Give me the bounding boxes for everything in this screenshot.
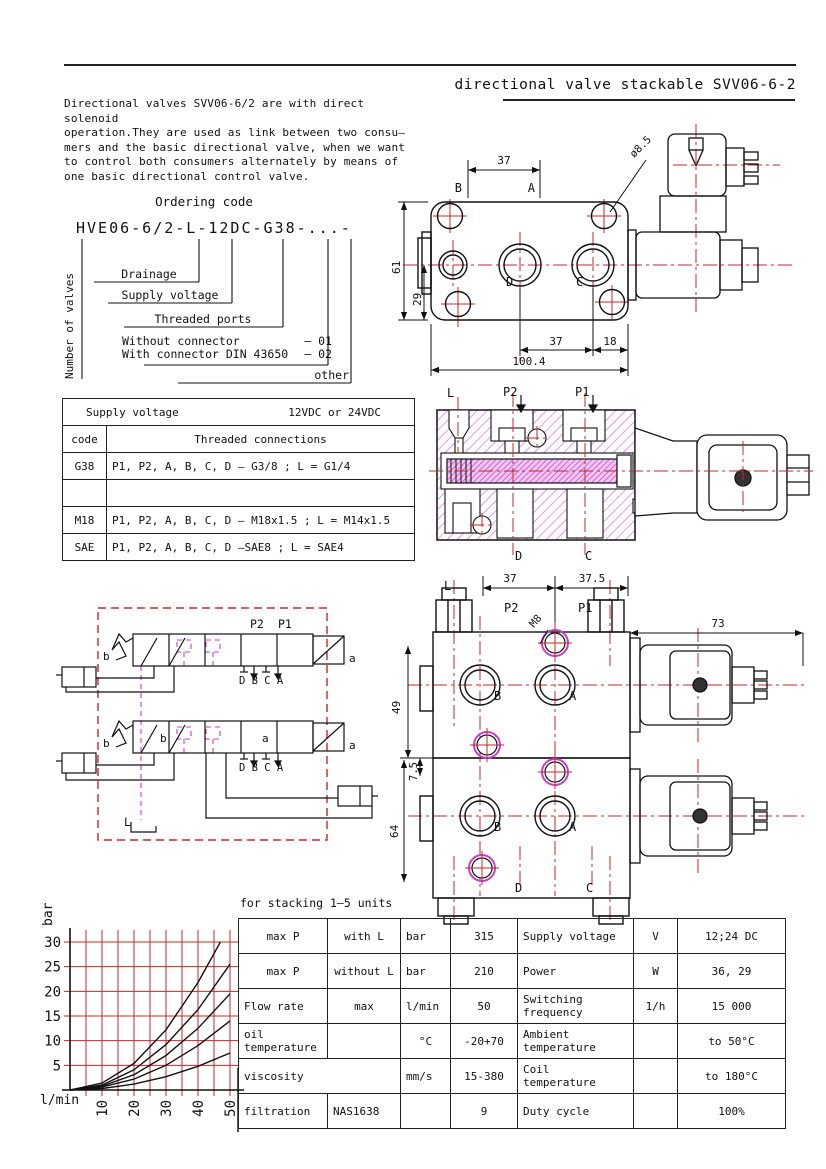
dim-29: 29 [411,293,424,306]
schematic-p1: P1 [278,617,292,631]
x-tick-label: 20 [127,1100,143,1117]
code-cell [63,480,107,507]
table-row: max P with L bar 315 Supply voltage V 12… [239,919,786,954]
schematic-a2: a [349,739,356,752]
y-tick-label: 15 [44,1009,61,1025]
schematic-b2: b [103,737,110,750]
supply-voltage-label: Supply voltage [122,288,219,302]
hydraulic-schematic: P2 P1 b a D B C A b a b a D B C A L [56,590,392,860]
x-tick-label: 40 [191,1100,207,1117]
stacked-b1: B [494,689,501,703]
stacked-label-l: L [444,579,451,593]
spec-cell: 12;24 DC [678,919,786,954]
stacked-centerlines [408,580,804,922]
port-label-c: C [576,275,583,289]
chart-xlabel: l/min [40,1093,79,1108]
spec-cell [634,1094,678,1129]
y-tick-label: 10 [44,1034,61,1050]
code-cell: M18 [63,507,107,534]
ordering-title: Ordering code [155,194,253,209]
dim-hole-dia: ø8.5 [628,134,654,160]
connections-cell: P1, P2, A, B, C, D – M18x1.5 ; L = M14x1… [107,507,415,534]
ordering-leader-lines [82,239,351,383]
spec-cell: 1/h [634,989,678,1024]
spec-cell: max P [239,954,328,989]
dim-61: 61 [390,261,403,274]
other-label: other [314,368,349,382]
spec-cell: Ambient temperature [518,1024,634,1059]
schematic-ports-2: D B C A [239,762,284,774]
table-row: oil temperature °C -20+70 Ambient temper… [239,1024,786,1059]
stacked-a1: A [569,689,577,703]
table-row: G38 P1, P2, A, B, C, D – G3/8 ; L = G1/4 [63,453,415,480]
schematic-l: L [124,815,131,829]
spec-cell: 100% [678,1094,786,1129]
dim-73: 73 [711,617,724,630]
spec-cell [634,1059,678,1094]
connections-cell: P1, P2, A, B, C, D – G3/8 ; L = G1/4 [107,453,415,480]
spec-cell: mm/s [401,1059,451,1094]
label-d: D [515,549,522,563]
datasheet-page: directional valve stackable SVV06-6-2 Di… [0,0,826,1169]
cross-section-drawing: L P2 P1 D C [425,383,815,568]
stacked-c: C [586,881,593,895]
dim-37-5: 37.5 [579,572,606,585]
spec-cell: °C [401,1024,451,1059]
threaded-ports-label: Threaded ports [155,312,252,326]
ordering-code: HVE06-6/2-L-12DC-G38-...- [76,219,352,237]
spec-cell: Coil temperature [518,1059,634,1094]
x-tick-label: 50 [223,1100,239,1117]
connections-cell [107,480,415,507]
dim-37: 37 [503,572,516,585]
spec-cell: to 50°C [678,1024,786,1059]
without-connector-code: – 01 [304,334,332,348]
spec-cell: 9 [451,1094,518,1129]
page-title: directional valve stackable SVV06-6-2 [380,77,796,93]
label-p2: P2 [503,385,517,399]
schematic-b2-inner: b [160,732,167,745]
dim-37-bottom: 37 [549,335,562,348]
label-p1: P1 [575,385,589,399]
spec-cell: Duty cycle [518,1094,634,1129]
stacked-label-p1: P1 [578,601,592,615]
number-of-valves-label: Number of valves [63,273,76,379]
spec-cell: 15-380 [451,1059,518,1094]
spec-cell: Power [518,954,634,989]
spec-cell: NAS1638 [328,1094,401,1129]
spec-cell: viscosity [239,1059,401,1094]
spec-cell: oil temperature [239,1024,328,1059]
block-outlines [420,588,630,924]
dim-7-5: 7.5 [408,762,420,781]
spec-cell: max [328,989,401,1024]
dim-18: 18 [603,335,616,348]
title-underline [503,99,795,101]
port-label-b: B [455,181,462,195]
top-rule [64,64,796,66]
table-row: code Threaded connections [63,426,415,453]
top-view-drawing: 37 ø8.5 B A 61 29 D C 37 18 100.4 [388,112,808,384]
table-row: Flow rate max l/min 50 Switching frequen… [239,989,786,1024]
dim-37-top: 37 [497,154,510,167]
dim-total: 100.4 [512,355,545,368]
label-l: L [447,386,454,400]
schematic-ports-1: D B C A [239,675,284,687]
spec-cell: l/min [401,989,451,1024]
port-label-a: A [528,181,536,195]
supply-voltage-value: 12VDC or 24VDC [288,406,381,419]
spec-cell [634,1024,678,1059]
drainage-label: Drainage [121,267,176,281]
table-row: filtration NAS1638 9 Duty cycle 100% [239,1094,786,1129]
schematic-b1: b [103,650,110,663]
schematic-p2: P2 [250,617,264,631]
spec-cell [401,1094,451,1129]
table-row [63,480,415,507]
valve-symbol-2 [112,721,344,766]
y-tick-label: 20 [44,984,61,1000]
connections-cell: P1, P2, A, B, C, D –SAE8 ; L = SAE4 [107,534,415,561]
ports-table: Supply voltage 12VDC or 24VDC code Threa… [62,398,415,561]
y-tick-label: 5 [53,1058,61,1074]
without-connector-label: Without connector [122,334,240,348]
spec-cell: with L [328,919,401,954]
spec-cell: 315 [451,919,518,954]
y-tick-label: 25 [44,960,61,976]
x-tick-label: 30 [159,1100,175,1117]
centerlines [403,124,793,362]
spec-cell: Switching frequency [518,989,634,1024]
intro-paragraph: Directional valves SVV06-6/2 are with di… [64,97,414,184]
spec-cell: max P [239,919,328,954]
with-connector-label: With connector DIN 43650 [122,347,288,361]
spec-cell: W [634,954,678,989]
schematic-a2-inner: a [262,732,269,745]
solenoid-section [635,428,809,520]
table-row: SAE P1, P2, A, B, C, D –SAE8 ; L = SAE4 [63,534,415,561]
spec-cell [328,1024,401,1059]
spec-cell: bar [401,919,451,954]
solenoid-outline [628,134,758,300]
dim-64: 64 [388,824,401,838]
stacked-b2: B [494,820,501,834]
code-cell: SAE [63,534,107,561]
spec-table-caption: for stacking 1–5 units [240,896,392,910]
table-row: viscosity mm/s 15-380 Coil temperature t… [239,1059,786,1094]
dim-49: 49 [390,701,403,714]
schematic-border [98,608,327,840]
spec-cell: without L [328,954,401,989]
with-connector-code: – 02 [304,347,332,361]
chart-ylabel: bar [41,902,56,926]
pressure-flow-chart: bar l/min 510152025301020304050 [36,890,244,1140]
label-c: C [585,549,592,563]
table-row: M18 P1, P2, A, B, C, D – M18x1.5 ; L = M… [63,507,415,534]
spec-cell: bar [401,954,451,989]
valve-symbol-1 [112,634,344,679]
schematic-a1: a [349,652,356,665]
spec-cell: Flow rate [239,989,328,1024]
stacked-d: D [515,881,522,895]
stacked-a2: A [569,820,577,834]
spec-cell: Supply voltage [518,919,634,954]
ordering-code-diagram: Ordering code HVE06-6/2-L-12DC-G38-...- … [56,192,396,392]
code-header: code [63,426,107,453]
x-tick-label: 10 [95,1100,111,1117]
spec-cell: 50 [451,989,518,1024]
spec-cell: V [634,919,678,954]
spec-cell: 210 [451,954,518,989]
thread-label-m8: M8 [527,613,544,630]
port-label-d: D [506,275,513,289]
spec-cell: to 180°C [678,1059,786,1094]
spec-cell: 15 000 [678,989,786,1024]
code-cell: G38 [63,453,107,480]
connections-header: Threaded connections [107,426,415,453]
stacked-view-drawing: 37 37.5 73 49 7.5 64 L P2 P1 M8 B A B A … [388,566,812,926]
drain-lines [141,640,220,820]
y-tick-label: 30 [44,935,61,951]
table-row: Supply voltage 12VDC or 24VDC [63,399,415,426]
spec-cell: filtration [239,1094,328,1129]
table-row: max P without L bar 210 Power W 36, 29 [239,954,786,989]
spec-cell: -20+70 [451,1024,518,1059]
spec-table: max P with L bar 315 Supply voltage V 12… [238,918,786,1129]
supply-voltage-label: Supply voltage [86,406,179,419]
stacked-label-p2: P2 [504,601,518,615]
spec-cell: 36, 29 [678,954,786,989]
